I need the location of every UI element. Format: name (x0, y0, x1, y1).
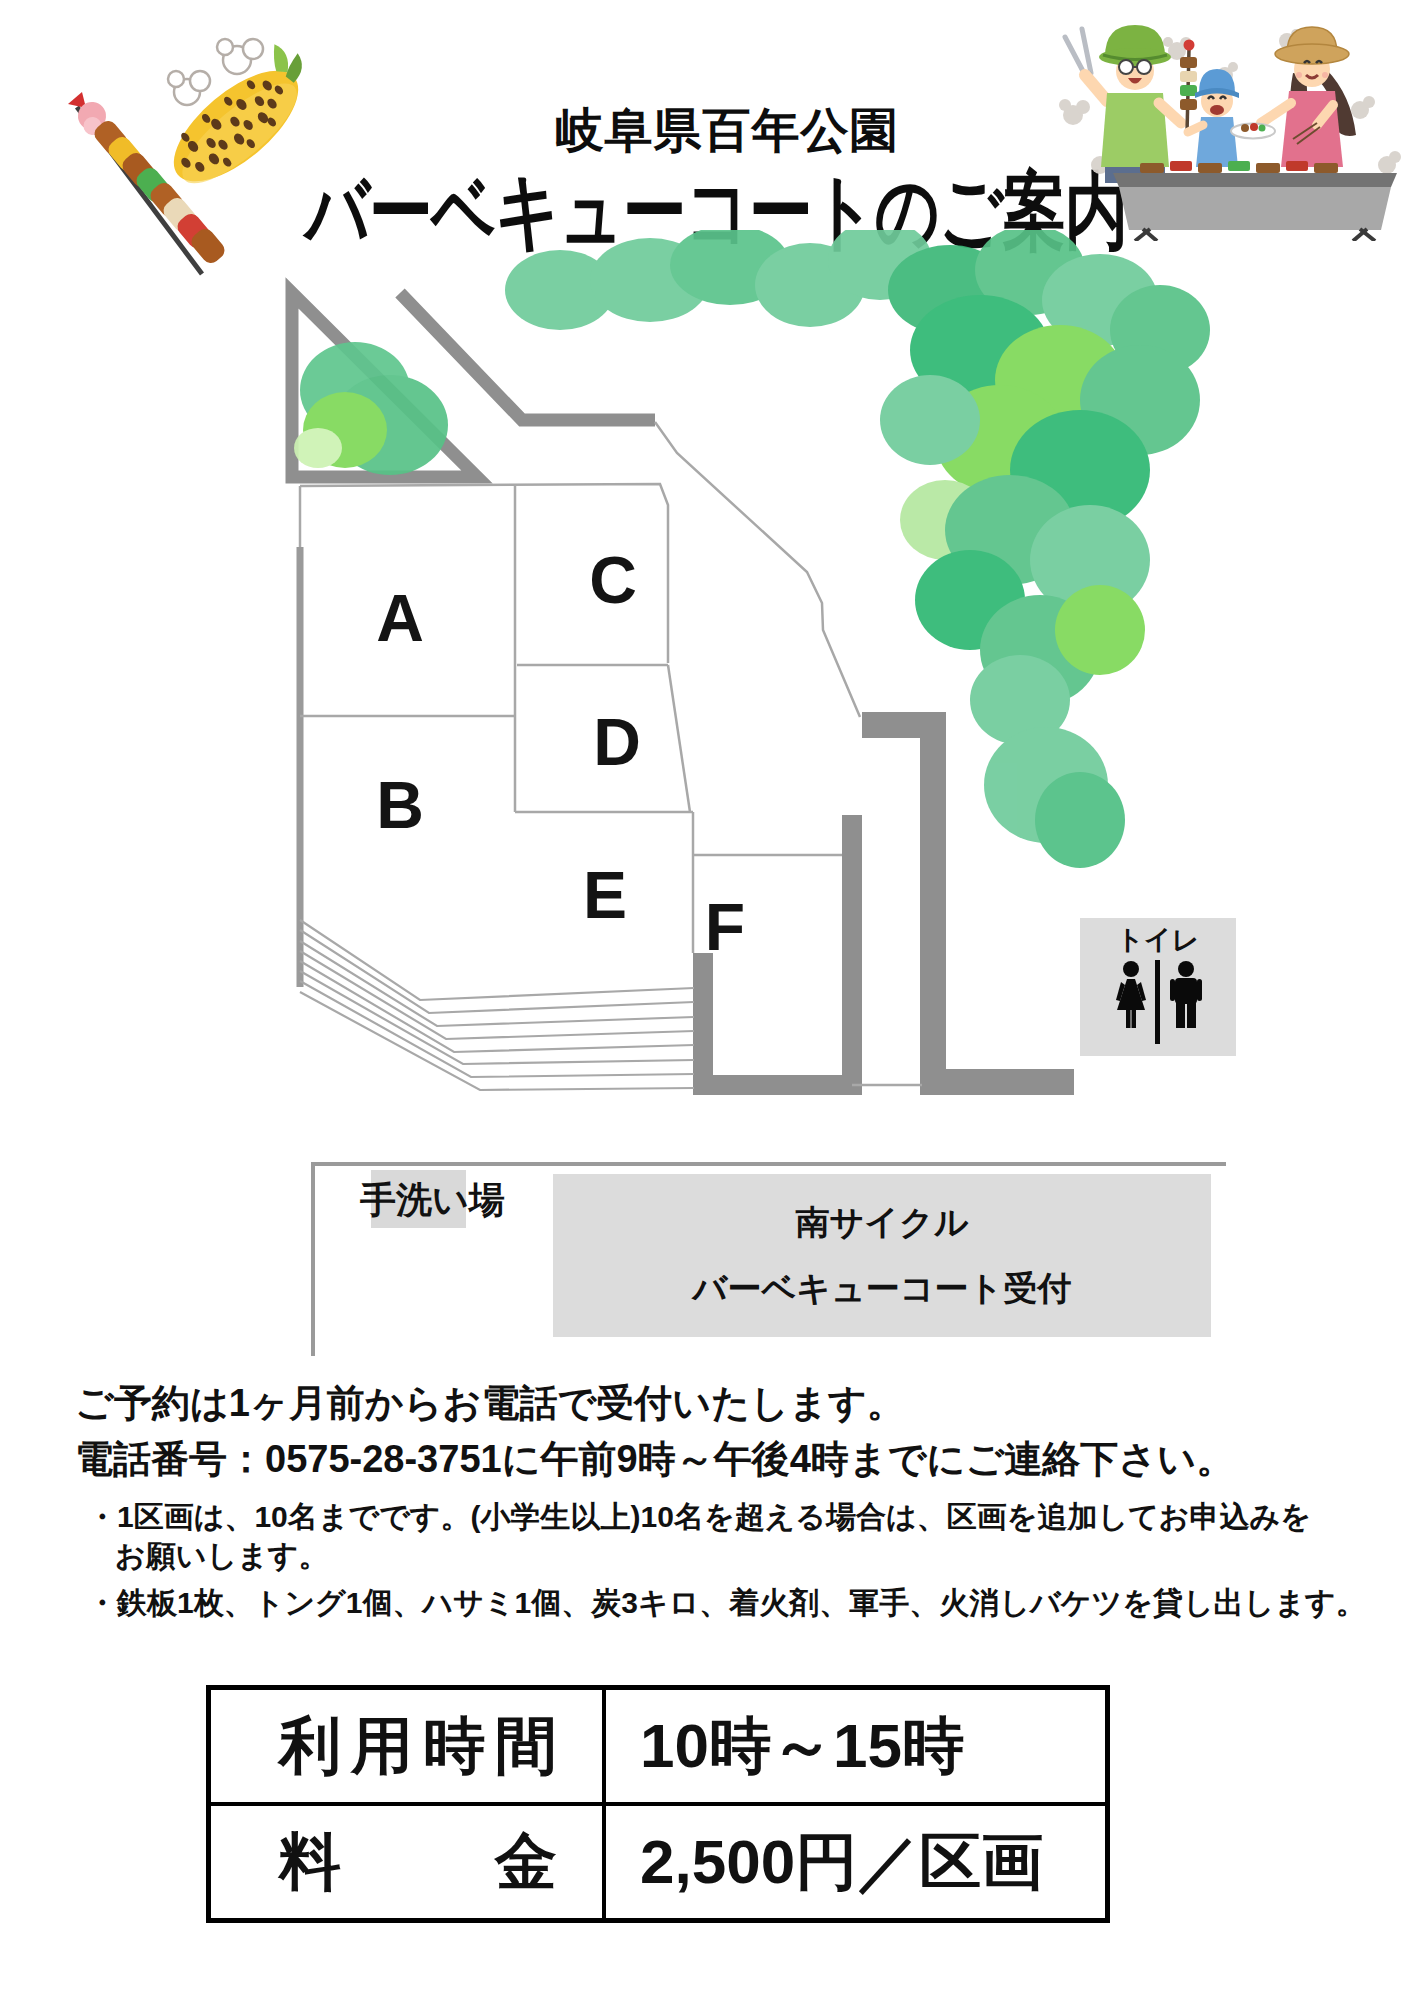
bbq-grill-icon (1113, 161, 1397, 241)
restroom-icon (1103, 958, 1213, 1048)
south-area-section: 手洗い場 南サイクル バーベキューコート受付 (311, 1162, 1226, 1356)
plot-label-f: F (705, 890, 745, 964)
restroom-divider (1155, 960, 1160, 1044)
male-icon (1170, 961, 1202, 1028)
stairs-lines (300, 920, 694, 1090)
reception-line2: バーベキューコート受付 (693, 1266, 1072, 1312)
usage-info-table: 利用時間 10時～15時 料金 2,500円／区画 (206, 1685, 1110, 1923)
reception-box: 南サイクル バーベキューコート受付 (553, 1174, 1211, 1337)
table-label-hours: 利用時間 (211, 1690, 606, 1802)
family-bbq-illustration (1055, 15, 1407, 241)
handwash-label: 手洗い場 (360, 1176, 505, 1225)
plot-label-a: A (376, 581, 424, 655)
mother-figure (1231, 27, 1356, 167)
note-reservation: ご予約は1ヶ月前からお電話で受付いたします。 (75, 1380, 1380, 1428)
note-phone: 電話番号：0575-28-3751に午前9時～午後4時までにご連絡下さい。 (75, 1436, 1380, 1484)
table-label-price: 料金 (211, 1802, 606, 1918)
plot-label-c: C (589, 543, 637, 617)
plot-label-d: D (593, 705, 641, 779)
table-value-hours: 10時～15時 (606, 1690, 1105, 1802)
toilet-label: トイレ (1117, 922, 1200, 958)
table-value-price: 2,500円／区画 (606, 1802, 1105, 1918)
female-icon (1116, 961, 1146, 1028)
plot-label-b: B (376, 768, 424, 842)
reception-line1: 南サイクル (795, 1200, 968, 1246)
note-bullet1-line1: ・1区画は、10名までです。(小学生以上)10名を超える場合は、区画を追加してお… (75, 1497, 1380, 1536)
note-bullet1-line2: お願いします。 (75, 1536, 1380, 1575)
page-title: 岐阜県百年公園 (556, 99, 899, 163)
plot-label-e: E (583, 858, 627, 932)
bbq-flyer-page: 岐阜県百年公園 バーベキューコートのご案内 (0, 0, 1414, 2000)
reservation-notes: ご予約は1ヶ月前からお電話で受付いたします。 電話番号：0575-28-3751… (75, 1380, 1380, 1622)
note-bullet2: ・鉄板1枚、トング1個、ハサミ1個、炭3キロ、着火剤、軍手、火消しバケツを貸し出… (75, 1583, 1380, 1622)
boy-figure (1188, 69, 1239, 167)
toilet-box: トイレ (1080, 918, 1236, 1056)
